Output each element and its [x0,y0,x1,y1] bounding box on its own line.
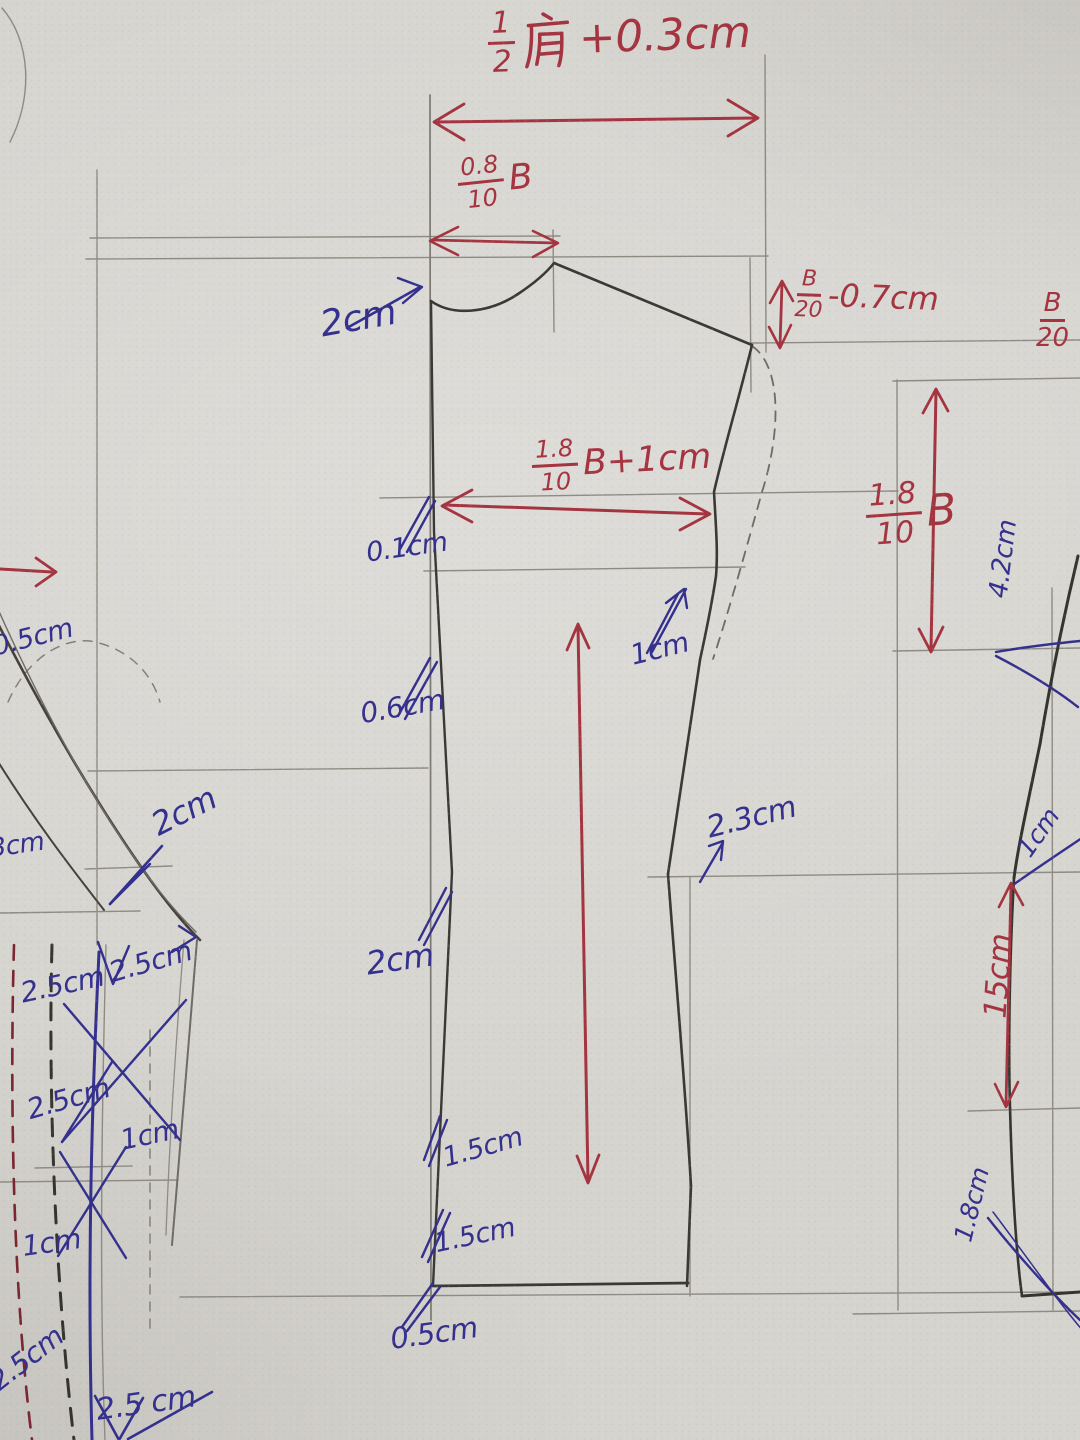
formula-armhole-depth: 1.810 B [864,476,959,551]
formula-shoulder-slope: B20 -0.7cm [794,268,940,326]
kanji-shoulder: 肩 [523,11,573,77]
pencil-construction-lines [0,8,1080,1440]
side-seam-lower [668,874,691,1186]
kanji-shoulder-strokes [523,11,573,69]
center-length-arrow [578,626,588,1181]
armhole-dashed-curve [713,346,776,659]
neckline-curve [431,263,554,311]
pattern-drawing [0,0,1080,1440]
measure-15cm-rotated: 15cm [977,932,1019,1019]
shoulder-drop-arrow [780,283,782,346]
red-dimension-arrows [0,100,1023,1183]
hem-line [433,1283,688,1286]
formula-edge-partial: B20 [1036,290,1069,351]
side-seam-upper [668,660,700,874]
right-piece-curves [1009,556,1080,1296]
formula-back-neck-rise: 0.810 B [455,148,536,213]
left-edge-arrow [0,569,52,572]
chest-width-arrow [444,505,708,514]
back-neck-arrow [432,240,556,243]
shoulder-width-arrow [436,118,756,122]
fraction-1-2: 12 [487,8,516,78]
center-edge [431,301,452,872]
pattern-draft-photo: 12 肩 +0.3cm 0.810 B B20 -0.7cm B20 1.810 [0,0,1080,1440]
armhole-curve [700,345,752,660]
formula-half-chest: 1.810 B+1cm [531,429,713,495]
shoulder-seam [554,263,752,345]
formula-half-shoulder: 12 肩 +0.3cm [487,0,752,78]
